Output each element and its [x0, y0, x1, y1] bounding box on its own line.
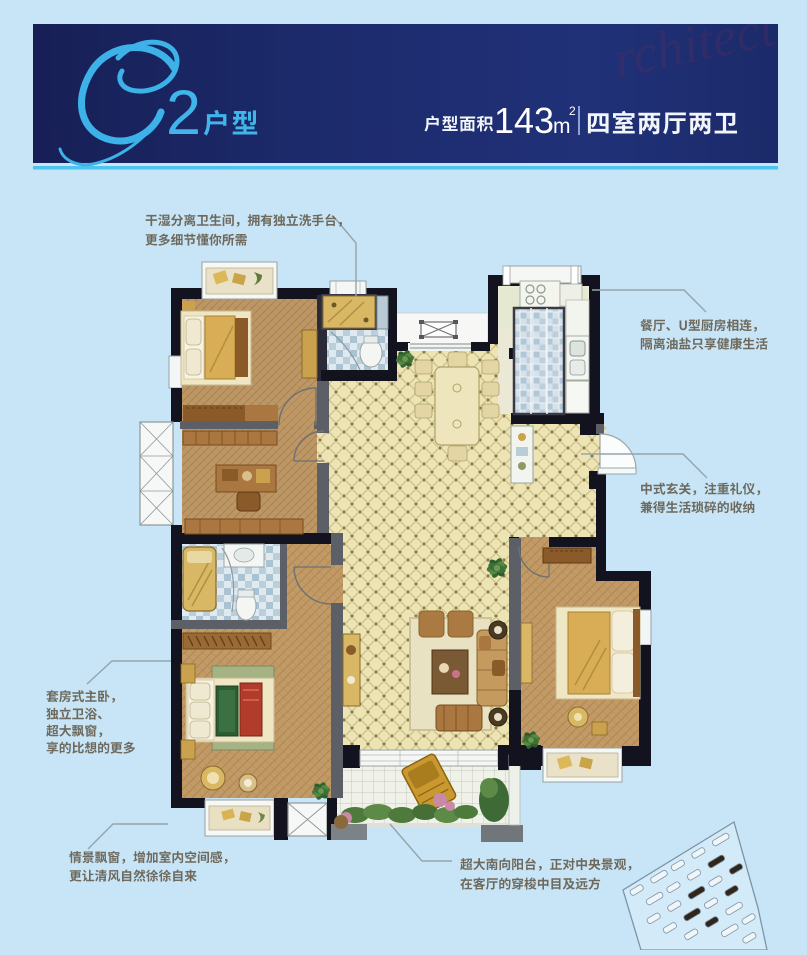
svg-text:143: 143 — [494, 100, 554, 141]
svg-text:2: 2 — [569, 104, 576, 118]
svg-text:2: 2 — [166, 78, 201, 148]
svg-text:m: m — [553, 115, 571, 138]
